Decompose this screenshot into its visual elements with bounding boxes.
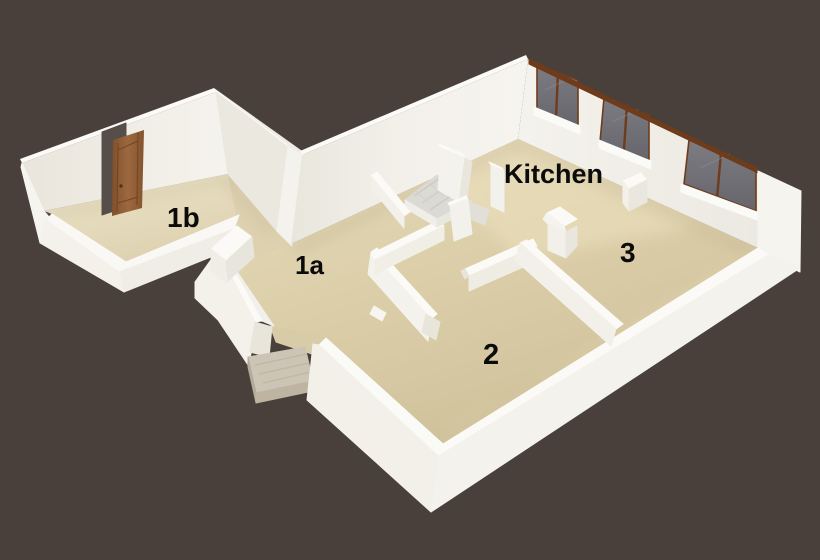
svg-text:1a: 1a xyxy=(295,250,324,280)
svg-text:Kitchen: Kitchen xyxy=(504,159,603,189)
svg-text:3: 3 xyxy=(620,237,636,268)
svg-text:1b: 1b xyxy=(167,202,200,233)
svg-text:2: 2 xyxy=(483,339,499,371)
